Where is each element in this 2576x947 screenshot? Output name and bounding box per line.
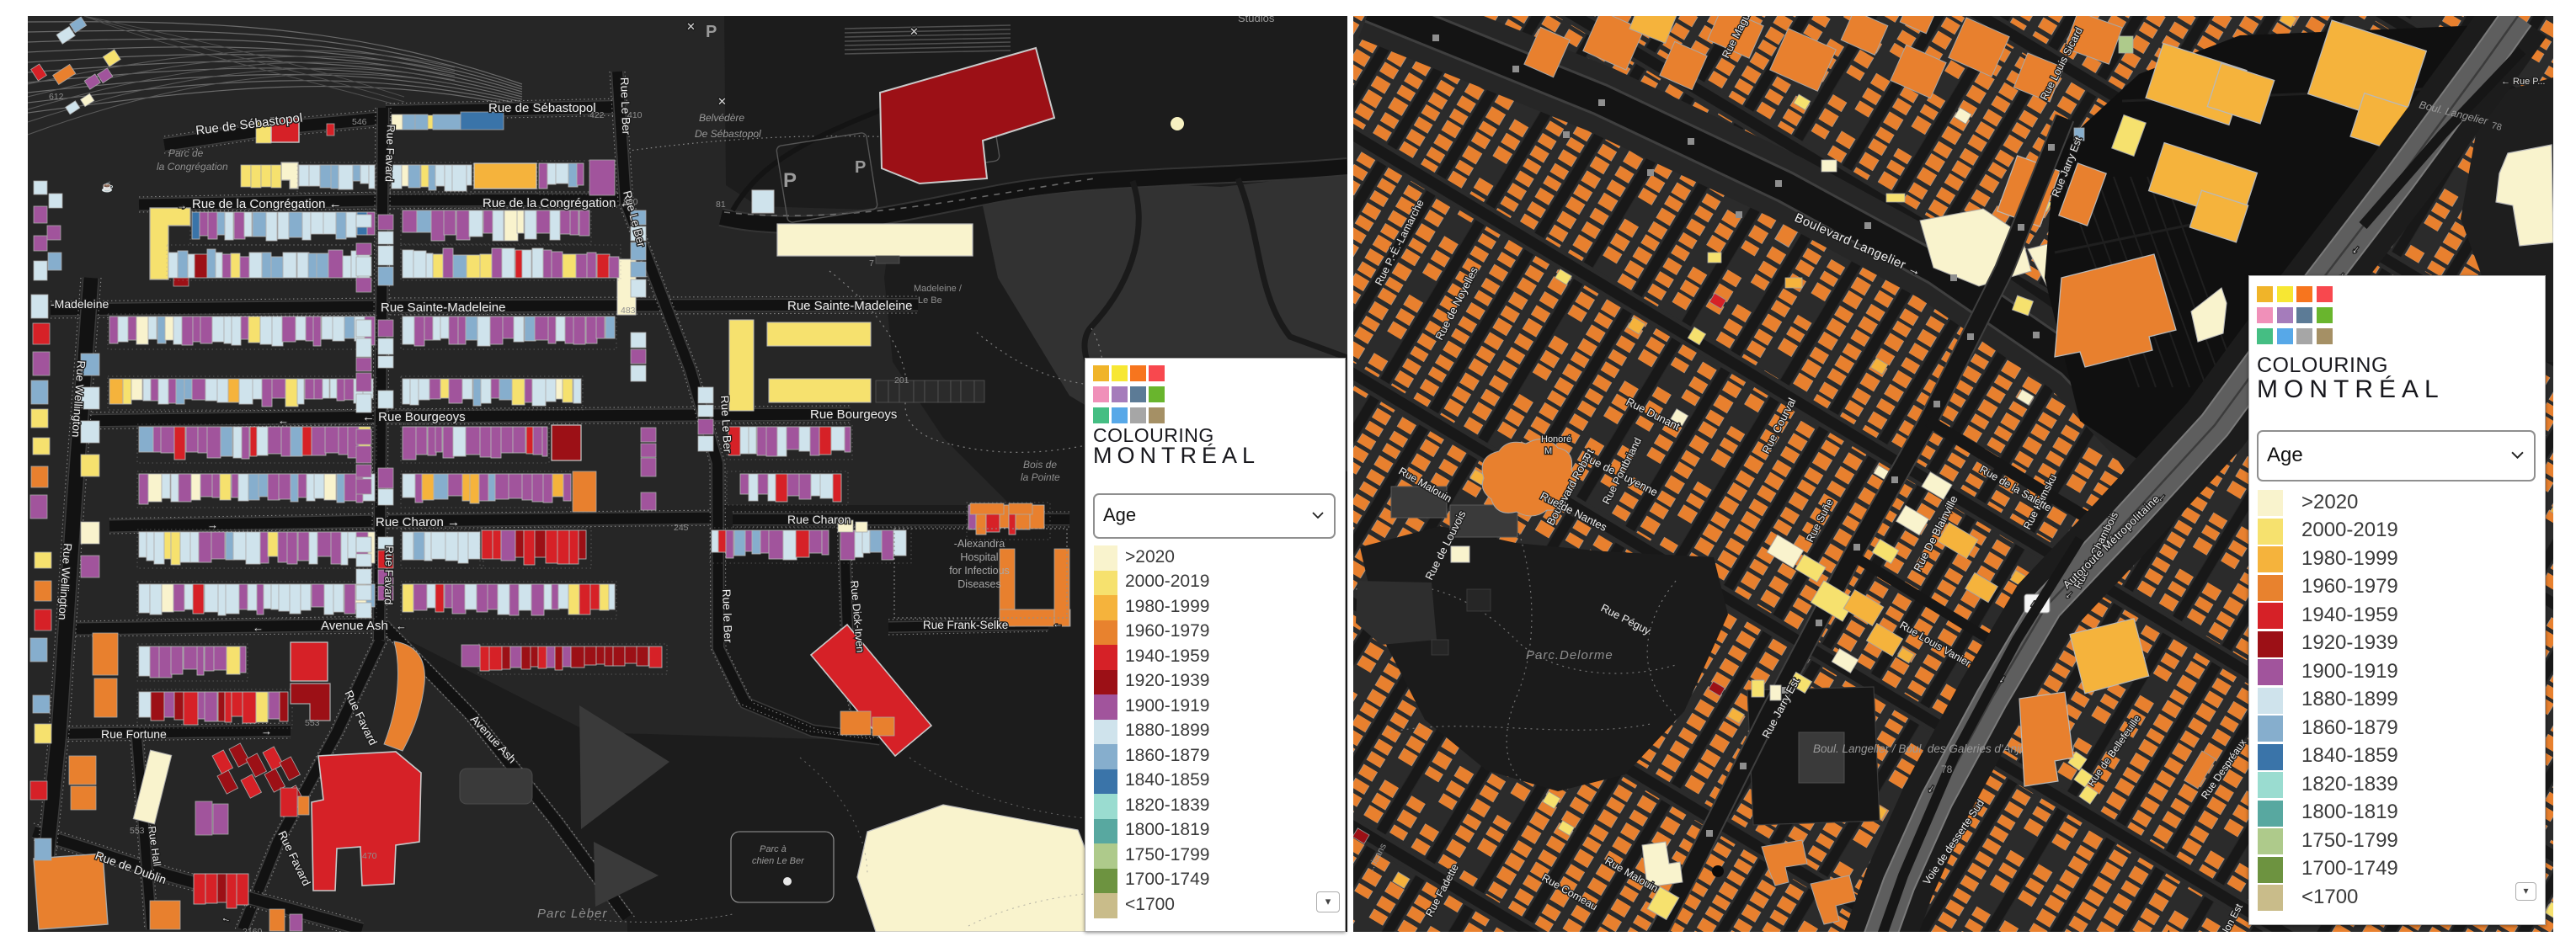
svg-text:Bois de: Bois de: [1023, 459, 1057, 471]
svg-text:←: ←: [396, 620, 407, 632]
svg-text:201: 201: [894, 375, 909, 386]
svg-text:Rue Sainte-Madeleine: Rue Sainte-Madeleine: [381, 301, 505, 315]
svg-text:✕: ✕: [686, 20, 696, 33]
svg-text:Madeleine /: Madeleine /: [914, 284, 963, 294]
svg-text:→: →: [177, 200, 187, 211]
svg-text:Parc à: Parc à: [760, 844, 787, 854]
svg-text:✕: ✕: [717, 95, 727, 108]
svg-text:Parc de: Parc de: [168, 147, 204, 159]
svg-text:Honoré: Honoré: [1541, 434, 1571, 444]
svg-text:☕: ☕: [101, 180, 114, 193]
svg-text:81: 81: [716, 200, 726, 210]
svg-text:Studios: Studios: [1238, 16, 1275, 24]
svg-text:la Congrégation: la Congrégation: [157, 161, 228, 173]
svg-text:Rue de la Congrégation ←: Rue de la Congrégation ←: [192, 197, 342, 211]
svg-text:← Rue P...: ← Rue P...: [2501, 77, 2545, 87]
svg-text:Rue Charon →: Rue Charon →: [376, 515, 460, 529]
svg-text:Boul. Langelier / Boul. des Ga: Boul. Langelier / Boul. des Galeries d'A…: [1813, 742, 2032, 755]
svg-text:Rue Favard: Rue Favard: [383, 125, 397, 182]
svg-text:880: 880: [623, 197, 638, 207]
svg-text:Rue Fortune: Rue Fortune: [101, 727, 167, 741]
svg-text:Parc.Delorme: Parc.Delorme: [1526, 648, 1613, 662]
svg-text:Le Be: Le Be: [918, 295, 942, 306]
svg-text:553: 553: [130, 826, 145, 836]
svg-text:→: →: [261, 725, 272, 737]
svg-text:Rue Charon: Rue Charon: [787, 513, 851, 526]
svg-text:Hospital: Hospital: [960, 551, 998, 563]
svg-text:P: P: [706, 23, 717, 41]
svg-text:546: 546: [352, 117, 367, 127]
svg-text:←: ←: [278, 414, 289, 427]
svg-text:←: ←: [253, 621, 264, 634]
svg-text:78: 78: [1941, 763, 1953, 775]
svg-text:422: 422: [589, 110, 605, 120]
svg-text:Parc Lèber: Parc Lèber: [537, 907, 607, 921]
svg-text:✕: ✕: [909, 25, 919, 38]
svg-text:P: P: [855, 158, 866, 177]
svg-text:Rue Sainte-Madeleine: Rue Sainte-Madeleine: [787, 299, 912, 313]
svg-text:612: 612: [49, 92, 64, 102]
svg-text:P: P: [783, 169, 797, 192]
svg-text:410: 410: [627, 110, 643, 120]
svg-text:245: 245: [674, 523, 689, 533]
svg-text:for Infectious: for Infectious: [949, 565, 1010, 577]
svg-text:-Madeleine: -Madeleine: [51, 297, 109, 311]
svg-text:483: 483: [621, 306, 636, 316]
svg-text:Diseases: Diseases: [957, 578, 1000, 590]
svg-text:553: 553: [305, 718, 320, 728]
svg-text:7: 7: [869, 258, 874, 269]
svg-text:De Sébastopol: De Sébastopol: [695, 128, 761, 140]
svg-text:Avenue Ash: Avenue Ash: [321, 619, 388, 633]
svg-text:← Rue Bourgeoys: ← Rue Bourgeoys: [362, 410, 466, 424]
svg-text:→: →: [207, 519, 218, 531]
svg-text:-Alexandra: -Alexandra: [954, 538, 1005, 550]
svg-text:Rue Le Ber: Rue Le Ber: [618, 77, 632, 136]
svg-text:Rue le Ber: Rue le Ber: [720, 589, 734, 644]
svg-text:Rue de la Congrégation ←: Rue de la Congrégation ←: [483, 196, 632, 210]
svg-text:←: ←: [1053, 618, 1063, 630]
svg-text:M: M: [1544, 446, 1552, 456]
svg-text:chien Le Ber: chien Le Ber: [752, 856, 805, 866]
svg-text:Rue Frank-Selke: Rue Frank-Selke: [923, 619, 1008, 631]
svg-text:Rue de Sébastopol: Rue de Sébastopol: [488, 101, 596, 115]
svg-text:Belvédère: Belvédère: [699, 112, 744, 124]
svg-text:Rue Bourgeoys: Rue Bourgeoys: [810, 407, 897, 422]
svg-text:la Pointe: la Pointe: [1021, 471, 1060, 483]
svg-text:Rue Favard: Rue Favard: [382, 545, 396, 605]
svg-text:470: 470: [362, 851, 377, 861]
svg-text:2160: 2160: [243, 927, 263, 932]
